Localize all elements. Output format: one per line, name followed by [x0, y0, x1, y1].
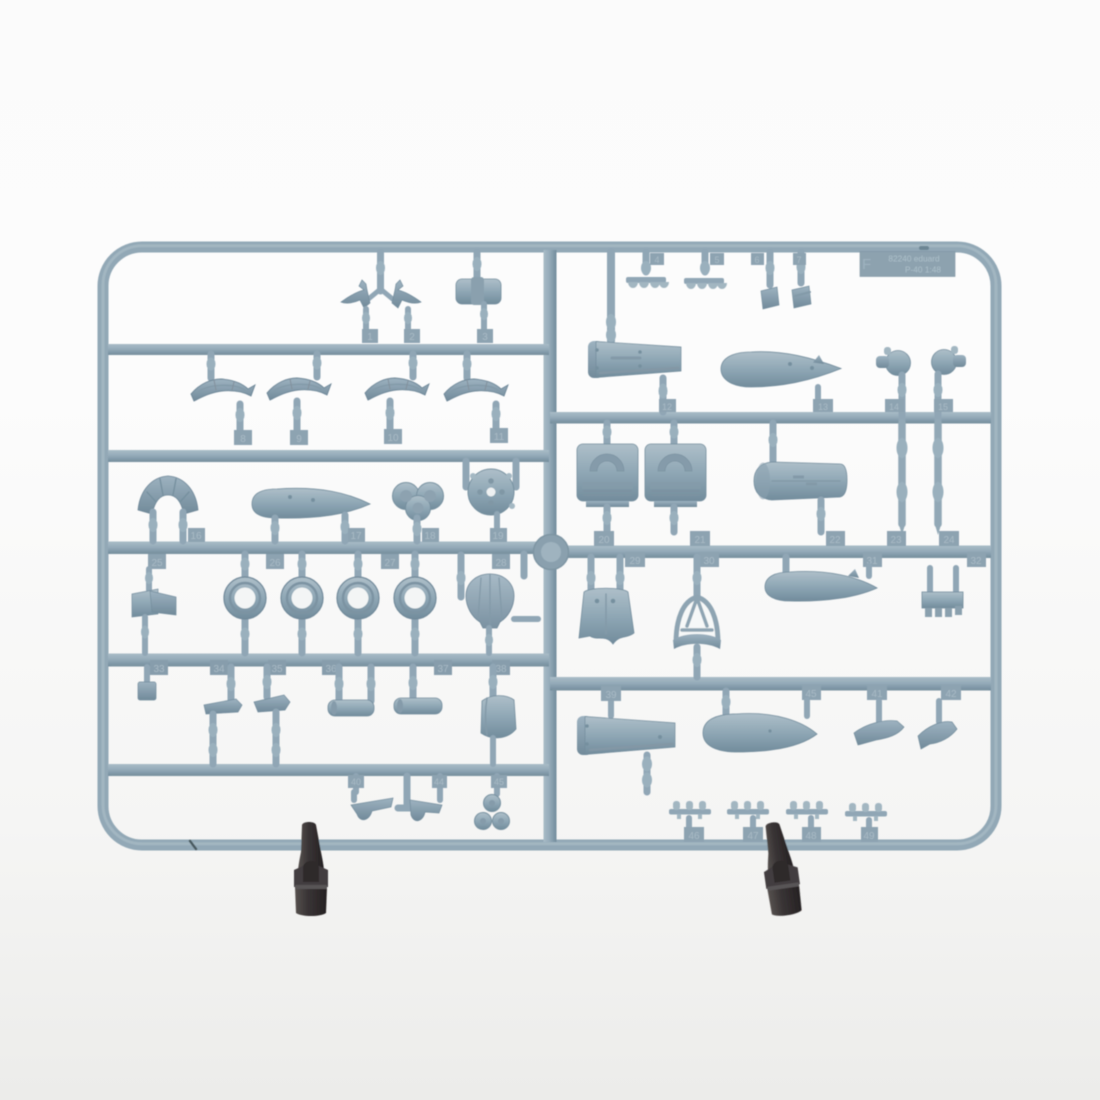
svg-text:37: 37 — [437, 664, 449, 675]
svg-text:3: 3 — [482, 332, 488, 343]
svg-text:46: 46 — [688, 831, 700, 842]
svg-text:12: 12 — [662, 402, 672, 412]
svg-text:36: 36 — [325, 664, 337, 675]
svg-text:33: 33 — [153, 664, 165, 675]
svg-text:8: 8 — [240, 434, 246, 445]
svg-text:P-40 1:48: P-40 1:48 — [905, 265, 941, 275]
svg-text:47: 47 — [747, 831, 759, 842]
svg-text:7: 7 — [796, 255, 801, 265]
svg-text:21: 21 — [694, 535, 706, 546]
svg-text:24: 24 — [943, 535, 955, 546]
svg-text:11: 11 — [494, 432, 505, 443]
svg-text:10: 10 — [387, 433, 399, 444]
svg-text:49: 49 — [863, 831, 875, 842]
svg-text:27: 27 — [384, 558, 396, 569]
svg-text:42: 42 — [945, 689, 957, 700]
svg-text:16: 16 — [190, 531, 202, 542]
svg-text:44: 44 — [434, 777, 444, 787]
svg-text:23: 23 — [890, 535, 902, 546]
svg-text:30: 30 — [703, 556, 715, 567]
svg-text:17: 17 — [350, 531, 362, 542]
svg-text:F: F — [862, 256, 871, 273]
svg-text:13: 13 — [818, 402, 828, 412]
svg-text:29: 29 — [629, 556, 641, 567]
svg-text:26: 26 — [269, 558, 281, 569]
svg-text:82240 eduard: 82240 eduard — [888, 254, 940, 264]
svg-text:20: 20 — [598, 535, 610, 546]
svg-text:48: 48 — [805, 831, 817, 842]
svg-text:39: 39 — [605, 690, 617, 701]
svg-text:2: 2 — [409, 332, 415, 343]
svg-text:41: 41 — [871, 689, 883, 700]
svg-text:34: 34 — [213, 664, 225, 675]
svg-text:45: 45 — [494, 777, 504, 787]
svg-text:14: 14 — [889, 402, 899, 412]
svg-text:9: 9 — [296, 434, 302, 445]
svg-text:15: 15 — [938, 402, 948, 412]
svg-text:25: 25 — [151, 558, 163, 569]
svg-text:38: 38 — [495, 664, 507, 675]
svg-text:1: 1 — [367, 332, 373, 343]
svg-text:19: 19 — [492, 531, 504, 542]
svg-text:28: 28 — [495, 558, 507, 569]
svg-text:4: 4 — [654, 255, 659, 265]
svg-text:40: 40 — [351, 777, 361, 787]
svg-text:35: 35 — [271, 664, 283, 675]
svg-text:6: 6 — [754, 255, 759, 265]
svg-text:32: 32 — [970, 556, 982, 567]
svg-text:22: 22 — [829, 535, 841, 546]
svg-text:5: 5 — [714, 255, 719, 265]
svg-text:18: 18 — [424, 531, 436, 542]
